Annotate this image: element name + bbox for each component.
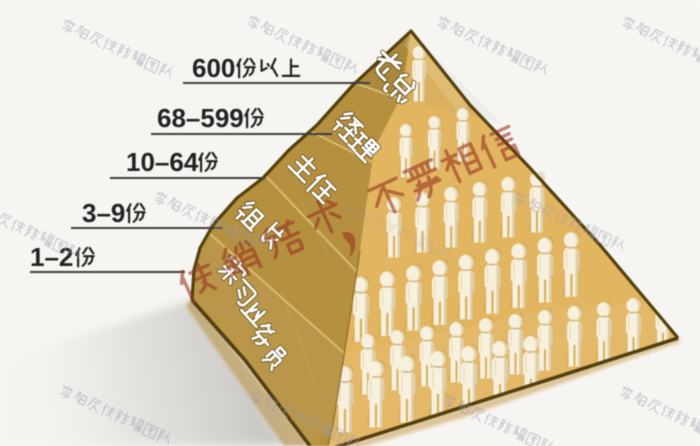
svg-text:600: 600 (192, 53, 235, 83)
svg-text:10–64: 10–64 (126, 147, 199, 177)
svg-text:3–9: 3–9 (82, 198, 125, 228)
svg-text:68–599: 68–599 (157, 103, 244, 133)
